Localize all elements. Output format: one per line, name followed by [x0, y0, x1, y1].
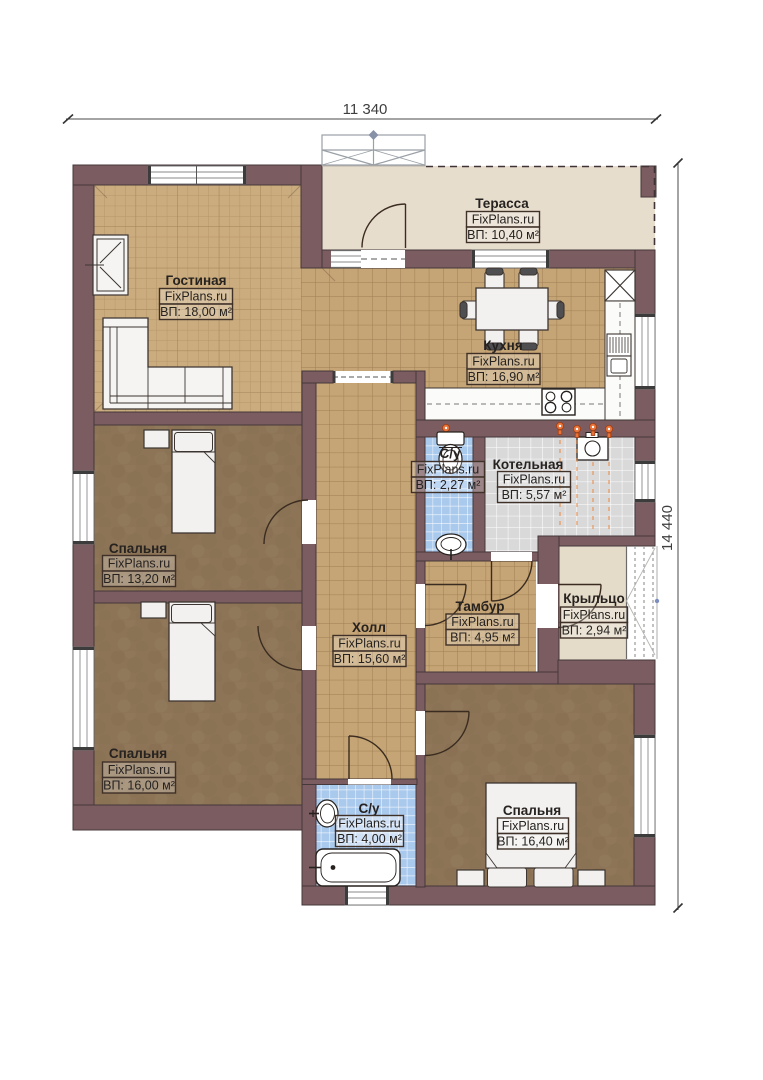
svg-text:14 440: 14 440	[659, 505, 676, 551]
svg-text:FixPlans.ru: FixPlans.ru	[108, 557, 171, 571]
svg-text:ВП: 15,60 м²: ВП: 15,60 м²	[334, 652, 406, 666]
svg-text:FixPlans.ru: FixPlans.ru	[108, 763, 171, 777]
svg-text:Спальня: Спальня	[109, 746, 167, 761]
svg-text:Спальня: Спальня	[109, 541, 167, 556]
svg-text:FixPlans.ru: FixPlans.ru	[503, 473, 566, 487]
svg-text:FixPlans.ru: FixPlans.ru	[417, 463, 480, 477]
svg-text:ВП: 4,00 м²: ВП: 4,00 м²	[337, 832, 402, 846]
svg-text:Кухня: Кухня	[483, 338, 522, 353]
svg-text:Терасса: Терасса	[475, 196, 529, 211]
svg-text:Гостиная: Гостиная	[165, 273, 226, 288]
svg-text:С/у: С/у	[439, 446, 461, 461]
svg-text:ВП: 2,94 м²: ВП: 2,94 м²	[562, 624, 627, 638]
svg-text:Крыльцо: Крыльцо	[563, 591, 624, 606]
svg-text:ВП: 4,95 м²: ВП: 4,95 м²	[450, 631, 515, 645]
svg-text:Котельная: Котельная	[493, 457, 564, 472]
svg-text:ВП: 16,00 м²: ВП: 16,00 м²	[103, 779, 175, 793]
svg-text:FixPlans.ru: FixPlans.ru	[502, 819, 565, 833]
svg-text:ВП: 5,57 м²: ВП: 5,57 м²	[502, 488, 567, 502]
svg-text:ВП: 18,00 м²: ВП: 18,00 м²	[160, 305, 232, 319]
svg-text:FixPlans.ru: FixPlans.ru	[472, 213, 535, 227]
svg-text:ВП: 16,40 м²: ВП: 16,40 м²	[497, 835, 569, 849]
svg-text:FixPlans.ru: FixPlans.ru	[472, 355, 535, 369]
svg-text:FixPlans.ru: FixPlans.ru	[338, 817, 401, 831]
svg-text:ВП: 13,20 м²: ВП: 13,20 м²	[103, 572, 175, 586]
svg-text:FixPlans.ru: FixPlans.ru	[563, 608, 626, 622]
svg-text:С/у: С/у	[358, 801, 380, 816]
svg-text:FixPlans.ru: FixPlans.ru	[165, 290, 228, 304]
svg-text:Спальня: Спальня	[503, 803, 561, 818]
svg-text:FixPlans.ru: FixPlans.ru	[338, 637, 401, 651]
svg-text:11 340: 11 340	[343, 101, 388, 118]
svg-text:ВП: 2,27 м²: ВП: 2,27 м²	[416, 478, 481, 492]
svg-text:Тамбур: Тамбур	[456, 599, 505, 614]
svg-text:FixPlans.ru: FixPlans.ru	[451, 615, 514, 629]
svg-text:ВП: 16,90 м²: ВП: 16,90 м²	[468, 370, 540, 384]
svg-text:ВП: 10,40 м²: ВП: 10,40 м²	[467, 228, 539, 242]
svg-text:Холл: Холл	[352, 620, 386, 635]
